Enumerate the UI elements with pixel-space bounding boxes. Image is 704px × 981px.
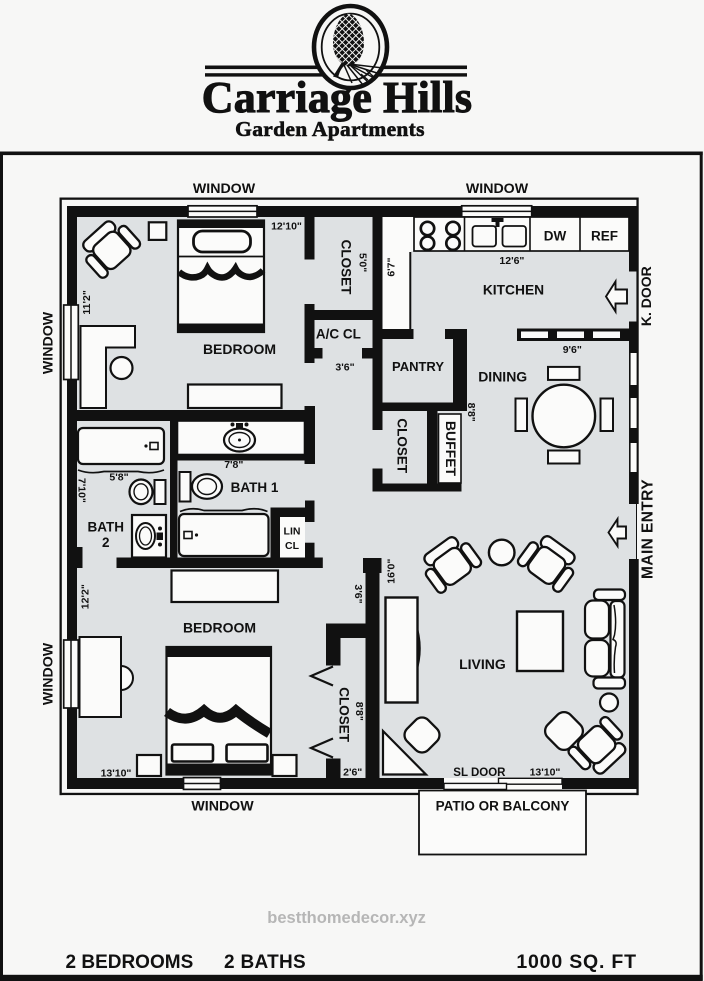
svg-text:BEDROOM: BEDROOM bbox=[183, 620, 256, 636]
svg-text:7'8": 7'8" bbox=[224, 459, 243, 471]
svg-text:DW: DW bbox=[544, 229, 567, 244]
svg-text:16'0": 16'0" bbox=[386, 559, 398, 584]
svg-text:8'8": 8'8" bbox=[465, 403, 477, 422]
svg-text:BATH 1: BATH 1 bbox=[231, 480, 279, 495]
svg-text:bestthomedecor.xyz: bestthomedecor.xyz bbox=[267, 909, 426, 927]
svg-text:2'6": 2'6" bbox=[343, 767, 362, 779]
svg-text:CLOSET: CLOSET bbox=[336, 687, 351, 743]
svg-text:CLOSET: CLOSET bbox=[338, 240, 353, 296]
svg-text:WINDOW: WINDOW bbox=[193, 181, 256, 197]
svg-text:1000 SQ. FT: 1000 SQ. FT bbox=[516, 951, 636, 973]
svg-text:3'6": 3'6" bbox=[335, 362, 354, 374]
svg-text:7'10": 7'10" bbox=[76, 478, 88, 503]
svg-text:6'7": 6'7" bbox=[385, 258, 397, 277]
svg-text:LIVING: LIVING bbox=[459, 656, 506, 672]
svg-text:MAIN ENTRY: MAIN ENTRY bbox=[640, 479, 657, 579]
svg-text:BEDROOM: BEDROOM bbox=[203, 341, 276, 357]
svg-text:13'10": 13'10" bbox=[101, 768, 132, 780]
svg-text:K. DOOR: K. DOOR bbox=[638, 266, 654, 326]
svg-text:8'8": 8'8" bbox=[353, 702, 365, 721]
svg-text:DINING: DINING bbox=[478, 369, 527, 385]
svg-text:5'8": 5'8" bbox=[109, 471, 128, 483]
svg-text:LIN: LIN bbox=[284, 525, 301, 537]
svg-text:PANTRY: PANTRY bbox=[392, 359, 444, 374]
svg-text:WINDOW: WINDOW bbox=[466, 181, 529, 197]
svg-text:WINDOW: WINDOW bbox=[40, 311, 56, 374]
svg-text:BUFFET: BUFFET bbox=[443, 421, 459, 477]
svg-text:WINDOW: WINDOW bbox=[191, 798, 254, 814]
svg-text:12'2": 12'2" bbox=[79, 584, 91, 609]
svg-text:2: 2 bbox=[102, 535, 110, 550]
svg-text:2 BEDROOMS: 2 BEDROOMS bbox=[66, 952, 194, 973]
svg-text:WINDOW: WINDOW bbox=[40, 642, 56, 705]
svg-text:9'6": 9'6" bbox=[563, 344, 582, 356]
svg-text:PATIO OR BALCONY: PATIO OR BALCONY bbox=[436, 799, 570, 814]
svg-text:Garden Apartments: Garden Apartments bbox=[235, 117, 425, 141]
svg-text:CLOSET: CLOSET bbox=[394, 418, 409, 474]
svg-text:Carriage Hills: Carriage Hills bbox=[202, 73, 472, 122]
svg-text:SL DOOR: SL DOOR bbox=[453, 767, 506, 779]
svg-text:3'6": 3'6" bbox=[352, 584, 364, 603]
svg-text:REF: REF bbox=[591, 229, 618, 244]
svg-text:12'6": 12'6" bbox=[499, 255, 524, 267]
svg-text:2 BATHS: 2 BATHS bbox=[224, 952, 306, 973]
svg-text:5'0": 5'0" bbox=[357, 253, 369, 272]
svg-text:11'2": 11'2" bbox=[81, 290, 93, 314]
svg-text:13'10": 13'10" bbox=[530, 767, 561, 779]
svg-text:A/C CL: A/C CL bbox=[316, 327, 361, 342]
svg-text:KITCHEN: KITCHEN bbox=[483, 282, 544, 297]
svg-text:CL: CL bbox=[285, 540, 300, 552]
svg-text:BATH: BATH bbox=[88, 519, 125, 534]
svg-text:12'10": 12'10" bbox=[271, 221, 302, 233]
